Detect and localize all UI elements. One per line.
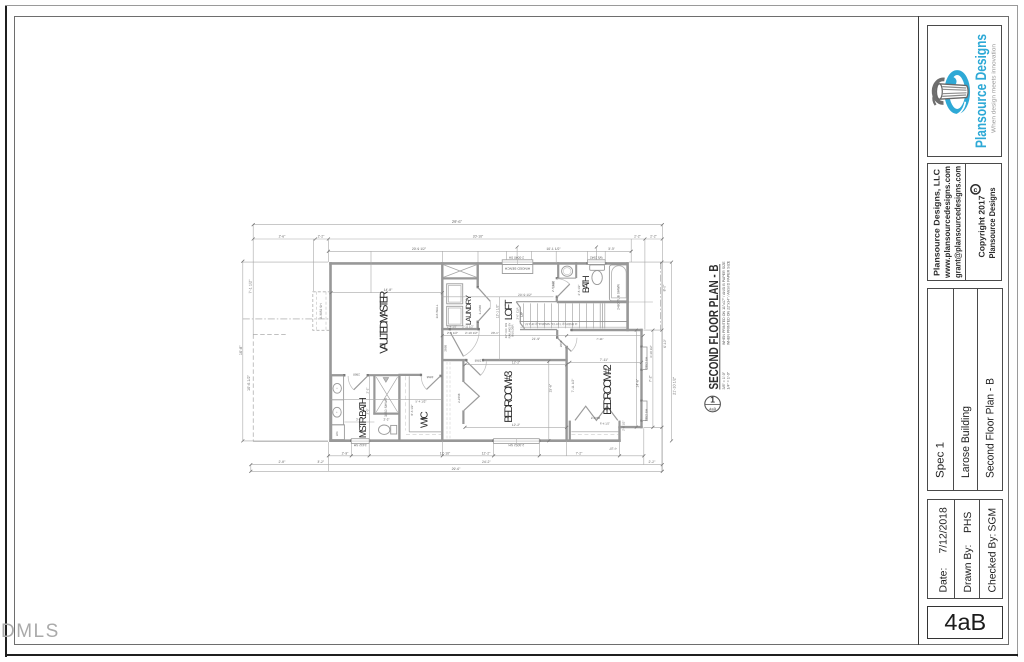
svg-text:8'-0": 8'-0" [663, 284, 667, 292]
svg-text:2852 SH: 2852 SH [645, 356, 649, 369]
svg-text:LAUNDRY: LAUNDRY [464, 295, 473, 325]
svg-text:14 RISERS @ 7 3/4" EA. HANDRA: 14 RISERS @ 7 3/4" EA. HANDRAIL @ 36" A.… [524, 322, 577, 326]
svg-text:HINGED BENCH: HINGED BENCH [504, 267, 530, 271]
svg-text:2868: 2868 [474, 359, 481, 363]
svg-text:2868: 2868 [426, 375, 433, 379]
svg-text:2868: 2868 [353, 372, 360, 376]
svg-text:2460 TUB SHWR: 2460 TUB SHWR [616, 283, 620, 309]
svg-text:7'-1 1/2": 7'-1 1/2" [249, 279, 253, 294]
svg-text:UP: UP [520, 311, 524, 317]
svg-text:12'-2": 12'-2" [512, 360, 521, 364]
svg-text:4aB: 4aB [709, 406, 716, 411]
svg-text:6'-4 1/2": 6'-4 1/2" [600, 422, 610, 426]
svg-text:2'-2": 2'-2" [318, 235, 326, 239]
svg-text:W5 2642: W5 2642 [590, 255, 603, 259]
svg-text:2-3052 SH: 2-3052 SH [508, 443, 524, 447]
svg-text:21'-10 1/2": 21'-10 1/2" [673, 376, 677, 395]
svg-text:10'-6 1/2": 10'-6 1/2" [247, 374, 251, 391]
svg-text:7'-11": 7'-11" [600, 358, 609, 362]
svg-text:14'-6": 14'-6" [636, 378, 640, 387]
svg-text:2-2668: 2-2668 [478, 305, 482, 315]
svg-text:2'-9": 2'-9" [342, 451, 350, 455]
svg-text:2x6 WALL: 2x6 WALL [435, 304, 439, 318]
svg-text:2-3052 SH: 2-3052 SH [319, 303, 323, 319]
svg-text:2'-5 1/2": 2'-5 1/2" [551, 281, 555, 292]
svg-text:12'-2": 12'-2" [482, 451, 491, 455]
svg-text:1: 1 [710, 395, 715, 405]
svg-text:2'-2": 2'-2" [650, 235, 658, 239]
svg-text:2868: 2868 [559, 340, 563, 347]
svg-text:LOFT: LOFT [504, 299, 515, 320]
svg-text:4'-10": 4'-10" [609, 447, 617, 451]
svg-text:5'-4 1/2": 5'-4 1/2" [416, 400, 427, 404]
svg-text:2-3068: 2-3068 [591, 416, 601, 420]
svg-text:12'-1 1/2": 12'-1 1/2" [495, 304, 499, 319]
svg-text:20'-9 1/2": 20'-9 1/2" [412, 247, 427, 251]
svg-text:WHEN PRINTED ON 11"x17" / ANSI: WHEN PRINTED ON 11"x17" / ANSI B PAPER S… [722, 261, 726, 345]
svg-text:2'-6 1/2": 2'-6 1/2" [622, 421, 626, 431]
svg-text:2'-2": 2'-2" [634, 235, 642, 239]
svg-text:2-2668: 2-2668 [457, 393, 461, 403]
svg-text:2432 SH: 2432 SH [353, 443, 366, 447]
svg-text:VAULTED MASTER: VAULTED MASTER [379, 291, 391, 354]
svg-text:15'-6": 15'-6" [549, 383, 553, 392]
svg-text:2'-6": 2'-6" [279, 235, 287, 239]
svg-text:2'-8": 2'-8" [279, 460, 287, 464]
svg-text:20'-9 1/2": 20'-9 1/2" [518, 293, 533, 297]
svg-text:2'-10 1/2": 2'-10 1/2" [465, 331, 478, 335]
svg-text:2'-4 1/2": 2'-4 1/2" [447, 331, 458, 335]
svg-text:BEDROOM #2: BEDROOM #2 [602, 364, 614, 414]
svg-text:3'-10 1/2": 3'-10 1/2" [649, 345, 653, 358]
svg-text:29'-6": 29'-6" [452, 467, 461, 471]
svg-text:BEDROOM #3: BEDROOM #3 [503, 371, 515, 423]
svg-text:1/4" = 1'-0": 1/4" = 1'-0" [727, 371, 731, 389]
svg-text:2868: 2868 [443, 345, 447, 352]
svg-text:3060 SHWR: 3060 SHWR [384, 398, 388, 417]
svg-text:WIC: WIC [420, 412, 431, 429]
svg-text:SECOND FLOOR PLAN - B: SECOND FLOOR PLAN - B [706, 265, 721, 390]
svg-text:3/8" = 1'-0": 3/8" = 1'-0" [722, 371, 726, 389]
svg-text:BUILDER: BUILDER [511, 324, 515, 336]
svg-text:6'-10": 6'-10" [663, 338, 667, 347]
svg-text:2-3040 SH: 2-3040 SH [508, 256, 524, 260]
svg-text:2852 SH: 2852 SH [645, 408, 649, 421]
svg-text:3'-0" CLR: 3'-0" CLR [516, 308, 520, 320]
svg-text:2'-4 1/2": 2'-4 1/2" [447, 325, 457, 329]
svg-text:BATH: BATH [580, 276, 591, 294]
svg-text:16'-8": 16'-8" [239, 345, 243, 355]
svg-text:24'-2": 24'-2" [482, 460, 491, 464]
svg-text:10'-1 1/2": 10'-1 1/2" [546, 247, 561, 251]
svg-text:3'-2": 3'-2" [317, 460, 325, 464]
svg-text:7'-2": 7'-2" [649, 375, 653, 383]
svg-text:2'-2": 2'-2" [649, 460, 657, 464]
svg-text:12'-10": 12'-10" [440, 451, 451, 455]
svg-text:WHEN PRINTED ON 22"x34" / ANSI: WHEN PRINTED ON 22"x34" / ANSI D PAPER S… [727, 260, 731, 345]
svg-text:29'-6": 29'-6" [452, 219, 463, 224]
svg-text:MSTR. BATH: MSTR. BATH [358, 397, 369, 438]
svg-text:20'-10": 20'-10" [473, 235, 484, 239]
svg-text:7'-11 1/2": 7'-11 1/2" [571, 378, 575, 392]
svg-text:8'-6 1/2": 8'-6 1/2" [410, 405, 414, 416]
svg-text:2'-2": 2'-2" [366, 388, 370, 394]
svg-text:7'-2": 7'-2" [576, 451, 584, 455]
svg-text:3'-3": 3'-3" [608, 247, 616, 251]
svg-text:7'-11": 7'-11" [596, 337, 603, 341]
svg-text:20'-1": 20'-1" [491, 331, 499, 335]
svg-text:2'-2": 2'-2" [384, 418, 390, 422]
svg-text:LIN.: LIN. [335, 431, 339, 437]
svg-text:21'-9": 21'-9" [532, 337, 541, 341]
